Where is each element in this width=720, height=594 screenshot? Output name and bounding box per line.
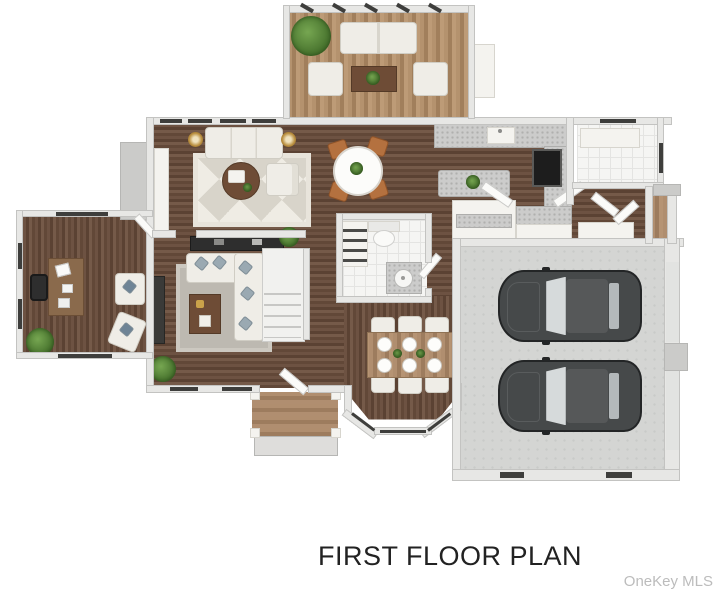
car-mirror [542,340,550,345]
coffee-table-tray [228,170,245,183]
sunroom-armchair [308,62,343,96]
bathroom-wall [336,296,432,303]
pantry-window [600,119,636,123]
kitchen-faucet [498,129,502,133]
living-room-sofa [205,127,283,159]
car-mirror [542,357,550,362]
car-rear-window [609,283,619,329]
hallway-sideboard [153,276,165,344]
dining-centerpiece [393,349,402,358]
bathroom-wall [336,213,432,220]
wall [566,117,574,205]
breakfast-table-plant [350,162,363,175]
place-setting [427,337,442,352]
sunroom-wall [468,5,475,119]
wall [152,230,176,238]
desk-papers [62,284,73,293]
side-table-right [281,132,296,147]
table-decor [196,300,204,308]
chimney-block [120,142,149,220]
stair-treads [264,284,301,338]
bench-top-left [456,214,512,228]
garage-vent [606,472,632,478]
dining-chair [398,316,422,334]
table-decor [199,315,211,327]
side-table-left [188,132,203,147]
sunroom-table-plant [366,71,380,85]
garage-vent [500,472,524,478]
sunroom-sofa [340,22,417,54]
bathroom-closet-shelves [342,221,368,267]
car-windshield [546,367,566,425]
wall [196,230,306,238]
pantry-window [659,143,663,173]
car-roof [566,369,608,423]
floor-plan-image: FIRST FLOOR PLAN OneKey MLS [0,0,720,594]
window [170,387,198,391]
desk-papers [58,298,70,308]
car-mirror [542,430,550,435]
car-windshield [546,277,566,335]
entry-porch-floor [252,392,338,436]
laundry-counter [580,128,640,148]
living-armchair [266,163,299,196]
side-porch-cap [653,184,681,196]
mudroom-wall [645,186,653,244]
window [252,119,276,123]
sunroom-armchair [413,62,448,96]
bathroom-wall [336,213,343,303]
place-setting [377,337,392,352]
office-window [18,243,22,269]
bench-top-mid [516,206,572,226]
bay-window [380,430,426,433]
sunroom-wall [283,5,290,119]
island-plant [466,175,480,189]
car-hood [507,282,540,333]
window [222,387,252,391]
place-setting [402,358,417,373]
garage-door-opening [666,368,679,450]
tv-console-item [214,239,224,245]
garage-wall [452,238,461,481]
sink-drain [401,276,405,280]
family-coffee-table [189,294,221,334]
toilet-bowl [373,230,395,247]
porch-post [250,428,260,438]
dining-chair [398,375,422,394]
bathroom-wall [425,213,432,263]
office-window [58,354,112,358]
garage-door-opening [666,262,679,342]
coffee-table-plant [243,183,252,192]
porch-post [331,428,341,438]
car [498,270,642,342]
sunroom-plant [291,16,331,56]
car-roof [566,279,608,333]
porch-step [254,436,338,456]
window [160,119,182,123]
garage-door-pillar [664,343,688,371]
car-mirror [542,267,550,272]
office-window [56,212,108,216]
dining-centerpiece [416,349,425,358]
watermark: OneKey MLS [624,573,713,590]
car-hood [507,372,540,423]
office-window [18,299,22,329]
stove [532,149,562,187]
place-setting [402,337,417,352]
tv-console-item [252,239,262,245]
car [498,360,642,432]
window [220,119,246,123]
office-chair [30,274,48,301]
place-setting [427,358,442,373]
window-seat [154,148,169,232]
page-title: FIRST FLOOR PLAN [318,541,582,572]
stair-wall [303,248,310,340]
garage-wall [452,469,680,481]
place-setting [377,358,392,373]
office-wall [16,210,23,359]
car-rear-window [609,373,619,419]
window [188,119,212,123]
